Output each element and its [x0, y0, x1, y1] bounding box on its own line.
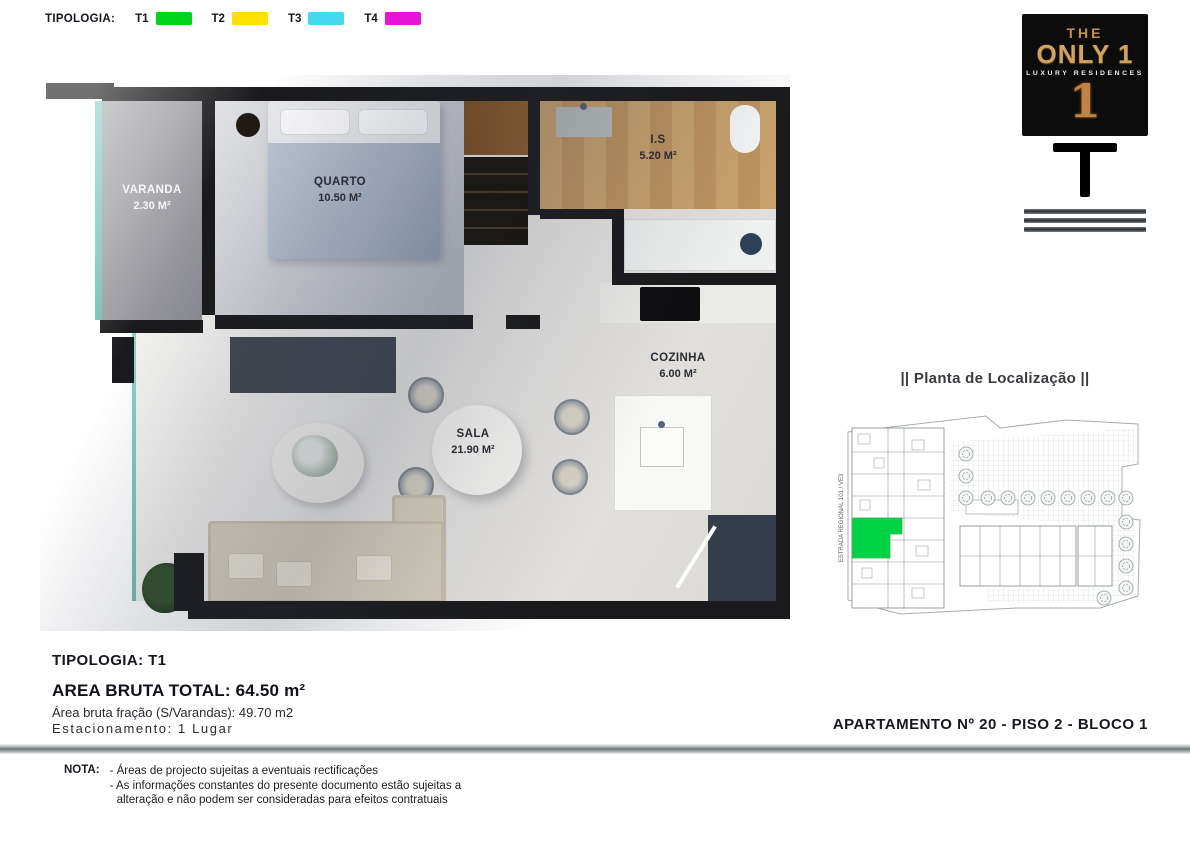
room-label-quarto: QUARTO 10.50 M²: [215, 175, 465, 205]
room-label-sala: SALA 21.90 M²: [398, 427, 548, 457]
wall: [202, 101, 215, 315]
wall: [528, 101, 540, 215]
gross-area-line: AREA BRUTA TOTAL: 64.50 m²: [52, 681, 305, 701]
sofa-cushion: [228, 553, 264, 579]
site-plan-drawing: ESTRADA REGIONAL 101 / VE3: [838, 400, 1150, 620]
legend-label-t2: T2: [212, 13, 225, 25]
bedside-stool: [236, 113, 260, 137]
room-label-varanda: VARANDA 2.30 M²: [102, 183, 202, 213]
legend-label-t4: T4: [364, 13, 377, 25]
logo-square: THE ONLY 1 LUXURY RESIDENCES 1: [1022, 14, 1148, 136]
dining-chair: [552, 459, 588, 495]
wall: [540, 209, 624, 219]
wall: [112, 337, 134, 383]
site-plan-title: || Planta de Localização ||: [840, 370, 1150, 387]
sideboard: [230, 337, 396, 393]
kitchen-sink: [640, 427, 684, 467]
terrace-floor: [708, 515, 776, 601]
dining-chair: [554, 399, 590, 435]
note-lines: - Áreas de projecto sujeitas a eventuais…: [110, 764, 462, 808]
note-block: NOTA: - Áreas de projecto sujeitas a eve…: [64, 764, 461, 808]
footer-divider-bar: [0, 744, 1190, 754]
sofa-cushion: [356, 555, 392, 581]
wall: [506, 315, 540, 329]
typology-legend: TIPOLOGIA: T1 T2 T3 T4: [45, 12, 421, 25]
room-label-is: I.S 5.20 M²: [540, 133, 776, 163]
legend-title: TIPOLOGIA:: [45, 13, 115, 25]
kitchen-faucet: [658, 421, 665, 428]
site-plan: ESTRADA REGIONAL 101 / VE3: [838, 400, 1150, 620]
t-mark-stem: [1080, 147, 1090, 197]
wall: [215, 315, 473, 329]
rule-bar: [1024, 209, 1146, 214]
dining-chair: [408, 377, 444, 413]
note-line: - Áreas de projecto sujeitas a eventuais…: [110, 764, 462, 779]
balcony-glass-window: [95, 101, 102, 320]
logo-rule-bars: [1022, 209, 1148, 232]
cooktop: [640, 287, 700, 321]
wall: [102, 87, 202, 101]
t4-color-swatch: [385, 12, 421, 25]
legend-item-t2: T2: [212, 12, 268, 25]
typology-line: TIPOLOGIA: T1: [52, 652, 166, 669]
logo-t-mark: [1022, 143, 1148, 199]
t1-color-swatch: [156, 12, 192, 25]
sofa-cushion: [276, 561, 312, 587]
flower-centerpiece: [292, 435, 338, 477]
legend-item-t3: T3: [288, 12, 344, 25]
wall: [174, 553, 204, 611]
pillow: [280, 109, 350, 135]
rule-bar: [1024, 218, 1146, 223]
room-label-cozinha: COZINHA 6.00 M²: [590, 351, 766, 381]
wardrobe-cabinet: [464, 101, 528, 155]
legend-label-t1: T1: [135, 13, 148, 25]
shoe-rack: [464, 157, 528, 245]
logo-only1-text: ONLY 1: [1022, 41, 1148, 68]
t2-color-swatch: [232, 12, 268, 25]
t3-color-swatch: [308, 12, 344, 25]
note-line: alteração e não podem ser consideradas p…: [110, 793, 462, 808]
wall: [776, 87, 790, 617]
road-label: ESTRADA REGIONAL 101 / VE3: [839, 473, 845, 562]
logo-numeral-1: 1: [1022, 78, 1148, 124]
fraction-area-line: Área bruta fração (S/Varandas): 49.70 m2: [52, 705, 293, 720]
wall: [100, 320, 203, 333]
wall: [188, 601, 790, 619]
apartment-floor-plan: VARANDA 2.30 M² QUARTO 10.50 M² I.S 5.20…: [40, 75, 790, 631]
floorplan-sheet: TIPOLOGIA: T1 T2 T3 T4 THE ONLY 1 LUXURY…: [0, 0, 1190, 841]
note-line: - As informações constantes do presente …: [110, 779, 462, 794]
apartment-number-line: APARTAMENTO Nº 20 - PISO 2 - BLOCO 1: [833, 716, 1148, 733]
sink-faucet: [580, 103, 587, 110]
legend-item-t1: T1: [135, 12, 191, 25]
parking-line: Estacionamento: 1 Lugar: [52, 721, 233, 736]
pillow: [358, 109, 428, 135]
wall: [612, 273, 776, 285]
rule-bar: [1024, 227, 1146, 232]
shower-drain: [740, 233, 762, 255]
brand-logo: THE ONLY 1 LUXURY RESIDENCES 1: [1022, 14, 1148, 232]
note-label: NOTA:: [64, 764, 100, 808]
legend-label-t3: T3: [288, 13, 301, 25]
wall: [200, 87, 788, 101]
legend-item-t4: T4: [364, 12, 420, 25]
